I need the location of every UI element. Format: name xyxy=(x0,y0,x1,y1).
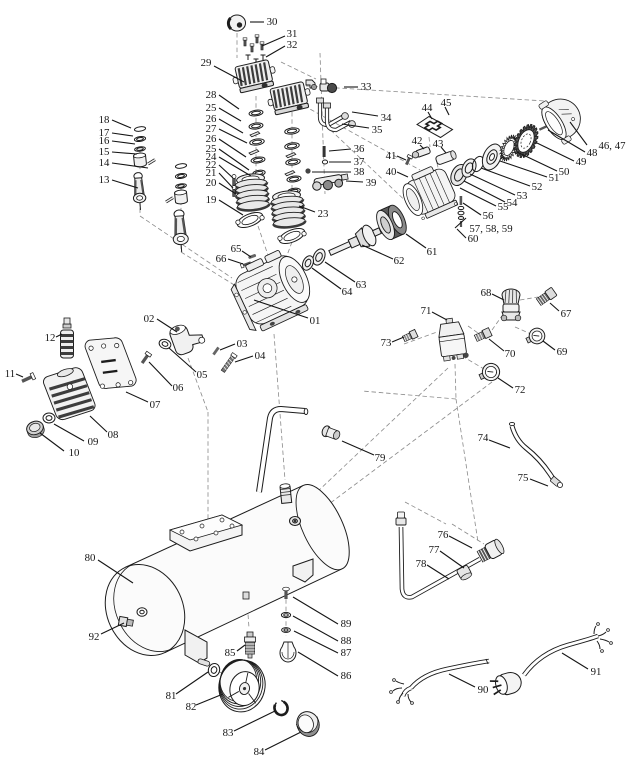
svg-text:89: 89 xyxy=(341,618,352,630)
svg-text:12: 12 xyxy=(45,332,56,344)
svg-text:83: 83 xyxy=(223,727,234,739)
svg-text:70: 70 xyxy=(505,348,516,360)
svg-text:46, 47: 46, 47 xyxy=(599,140,627,152)
svg-text:84: 84 xyxy=(254,746,265,758)
svg-text:03: 03 xyxy=(237,338,248,350)
svg-text:52: 52 xyxy=(532,181,543,193)
svg-text:80: 80 xyxy=(85,552,96,564)
svg-text:86: 86 xyxy=(341,670,352,682)
svg-text:61: 61 xyxy=(427,246,438,258)
svg-text:04: 04 xyxy=(255,350,266,362)
svg-text:44: 44 xyxy=(422,102,433,114)
svg-text:23: 23 xyxy=(318,208,329,220)
svg-text:72: 72 xyxy=(515,384,526,396)
svg-text:30: 30 xyxy=(267,16,278,28)
svg-text:13: 13 xyxy=(99,174,110,186)
svg-text:29: 29 xyxy=(201,57,212,69)
svg-text:90: 90 xyxy=(478,684,489,696)
svg-text:64: 64 xyxy=(342,286,353,298)
svg-text:06: 06 xyxy=(173,382,184,394)
svg-text:75: 75 xyxy=(518,472,529,484)
svg-text:56: 56 xyxy=(483,210,494,222)
svg-text:09: 09 xyxy=(88,436,99,448)
svg-text:39: 39 xyxy=(366,177,377,189)
svg-text:43: 43 xyxy=(433,138,444,150)
svg-text:34: 34 xyxy=(381,112,392,124)
svg-text:41: 41 xyxy=(386,150,397,162)
svg-text:88: 88 xyxy=(341,635,352,647)
svg-text:36: 36 xyxy=(354,143,365,155)
svg-text:35: 35 xyxy=(372,124,383,136)
svg-text:05: 05 xyxy=(197,369,208,381)
svg-text:08: 08 xyxy=(108,429,119,441)
svg-text:18: 18 xyxy=(99,114,110,126)
svg-text:78: 78 xyxy=(416,558,427,570)
svg-text:68: 68 xyxy=(481,287,492,299)
svg-text:20: 20 xyxy=(206,177,217,189)
svg-text:81: 81 xyxy=(166,690,177,702)
svg-text:73: 73 xyxy=(381,337,392,349)
svg-text:02: 02 xyxy=(144,313,155,325)
svg-text:69: 69 xyxy=(557,346,568,358)
svg-text:19: 19 xyxy=(206,194,217,206)
svg-text:10: 10 xyxy=(69,447,80,459)
svg-text:92: 92 xyxy=(89,631,100,643)
svg-text:48: 48 xyxy=(587,147,598,159)
svg-text:38: 38 xyxy=(354,166,365,178)
svg-text:11: 11 xyxy=(5,368,15,380)
svg-text:63: 63 xyxy=(356,279,367,291)
svg-text:60: 60 xyxy=(468,233,479,245)
svg-text:77: 77 xyxy=(429,544,440,556)
svg-text:91: 91 xyxy=(591,666,602,678)
svg-text:82: 82 xyxy=(186,701,197,713)
svg-text:32: 32 xyxy=(287,39,298,51)
svg-text:76: 76 xyxy=(438,529,449,541)
svg-text:45: 45 xyxy=(441,97,452,109)
svg-text:67: 67 xyxy=(561,308,572,320)
svg-text:85: 85 xyxy=(225,647,236,659)
svg-text:65: 65 xyxy=(231,243,242,255)
svg-text:53: 53 xyxy=(517,190,528,202)
svg-text:66: 66 xyxy=(216,253,227,265)
svg-text:33: 33 xyxy=(361,81,372,93)
svg-text:87: 87 xyxy=(341,647,352,659)
svg-text:14: 14 xyxy=(99,157,110,169)
svg-text:49: 49 xyxy=(576,156,587,168)
svg-text:79: 79 xyxy=(375,452,386,464)
svg-text:28: 28 xyxy=(206,89,217,101)
svg-text:40: 40 xyxy=(386,166,397,178)
svg-text:50: 50 xyxy=(559,166,570,178)
svg-text:01: 01 xyxy=(310,315,321,327)
svg-text:42: 42 xyxy=(412,135,423,147)
svg-text:55: 55 xyxy=(498,201,509,213)
svg-text:74: 74 xyxy=(478,432,489,444)
svg-text:71: 71 xyxy=(421,305,432,317)
svg-text:07: 07 xyxy=(150,399,161,411)
svg-text:62: 62 xyxy=(394,255,405,267)
svg-text:51: 51 xyxy=(549,172,560,184)
